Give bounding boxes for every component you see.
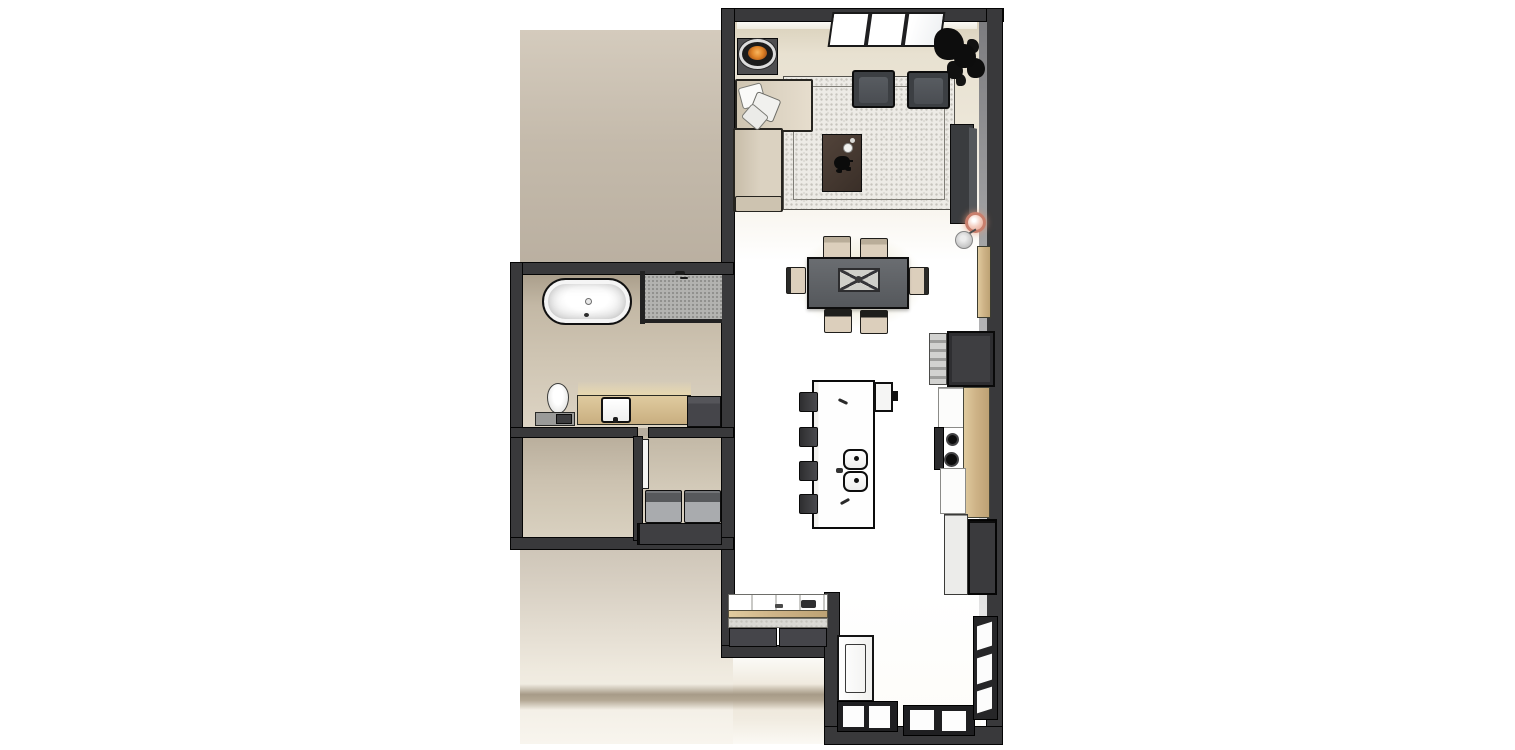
wall-bathroom-top (510, 262, 734, 275)
wall-timber-panel (977, 246, 991, 318)
dining-chair-left (786, 267, 806, 294)
bar-stool-3 (799, 461, 818, 481)
island-cooktop-appliance (874, 382, 893, 412)
countertop-appliance (929, 333, 947, 385)
fireplace-fire (748, 46, 767, 60)
laundry-floor-left (523, 436, 633, 538)
island-faucet-1 (854, 456, 859, 461)
bay-counter-item-2 (775, 604, 783, 608)
coffee-table-plant-icon (834, 156, 850, 170)
burner-1 (946, 433, 959, 446)
bar-stool-2 (799, 427, 818, 447)
plant-icon (934, 28, 964, 60)
entry-door-panel (845, 644, 866, 693)
bay-timber-strip (728, 610, 828, 618)
laundry-cabinet (637, 523, 722, 545)
dining-chair-bottom-1 (824, 309, 852, 333)
vanity-faucet (613, 417, 618, 423)
wall-bathroom-mid-left (510, 427, 638, 438)
kitchen-timber-worktop (963, 387, 990, 518)
living-window (828, 12, 946, 47)
shower-glass-panel (640, 271, 645, 324)
fridge-cabinet (947, 331, 995, 387)
cabinet-stack-dark (968, 519, 997, 595)
bottom-window-2-pane-2 (942, 711, 966, 731)
sofa-armrest (735, 196, 782, 212)
burner-2 (944, 452, 959, 467)
dining-chair-top-1 (823, 236, 851, 259)
shower-glass-bottom (640, 319, 722, 323)
coffee-table-vase (843, 143, 853, 153)
armchair-1-cushion (859, 77, 888, 103)
bath-cabinet-dark (687, 396, 721, 427)
shower-floor (643, 275, 722, 322)
media-console-side (969, 127, 977, 224)
coffee-table-dot (850, 138, 855, 143)
armchair-2-cushion (914, 78, 943, 104)
island-faucet-base (836, 468, 843, 473)
counter-mid-white (940, 468, 966, 514)
bathtub-faucet (584, 313, 589, 317)
laundry-door (642, 439, 649, 489)
dining-chair-right (909, 267, 929, 295)
island-faucet-2 (854, 478, 859, 483)
wall-bathroom-left (510, 262, 523, 550)
corner-glazing-pane-1 (977, 622, 992, 651)
dryer (684, 490, 721, 523)
bay-cabinet-2 (779, 628, 827, 647)
bottom-window-2-pane-1 (910, 710, 934, 730)
bay-counter-item (801, 600, 816, 608)
shower-head-icon (675, 271, 685, 275)
cabinet-stack-light (944, 514, 968, 595)
bay-bench-top (728, 618, 828, 628)
corner-glazing-pane-2 (977, 654, 992, 685)
vanity-mirror-glow (578, 381, 691, 396)
bar-stool-4 (799, 494, 818, 514)
washer (645, 490, 682, 523)
counter-upper-white (938, 387, 965, 428)
dining-centerpiece-knob (855, 276, 862, 283)
bay-cabinet-1 (729, 628, 777, 647)
bottom-window-1-pane-1 (843, 706, 864, 727)
floor-plan-canvas (0, 0, 1515, 750)
dining-chair-bottom-2 (860, 310, 888, 334)
range-front (934, 427, 944, 470)
bar-stool-1 (799, 392, 818, 412)
vanity-counter (577, 395, 691, 425)
floor-lamp (955, 231, 973, 249)
bathtub-drain (585, 298, 592, 305)
bottom-window-1-pane-2 (869, 706, 890, 728)
island-cooktop-knob (893, 391, 898, 401)
wall-left (721, 8, 735, 658)
wall-bathroom-mid-right (648, 427, 734, 438)
bath-cabinet-low-box (556, 414, 572, 424)
floor-shadow-band (520, 684, 825, 710)
